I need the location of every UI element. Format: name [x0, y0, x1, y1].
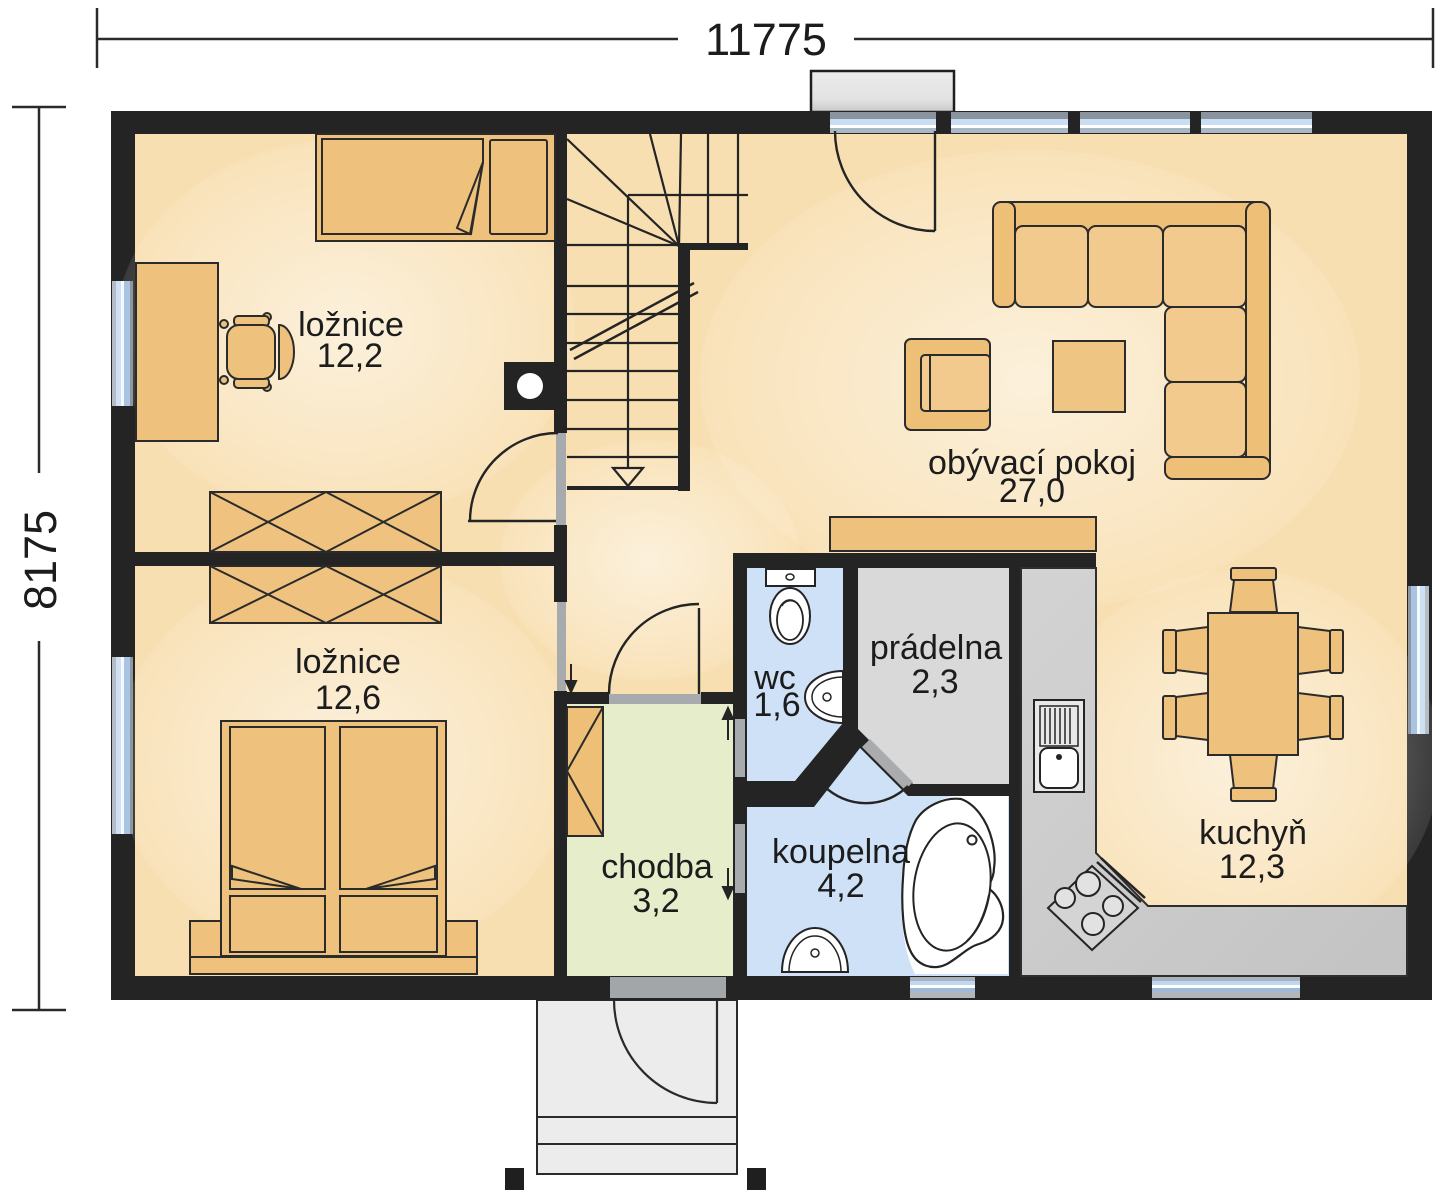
svg-text:ložnice: ložnice [295, 643, 401, 681]
svg-text:chodba: chodba [601, 848, 713, 886]
svg-text:4,2: 4,2 [817, 867, 864, 905]
svg-text:prádelna: prádelna [870, 629, 1002, 667]
svg-text:kuchyň: kuchyň [1199, 814, 1307, 852]
svg-text:12,2: 12,2 [317, 337, 383, 375]
svg-text:1,6: 1,6 [753, 686, 800, 724]
svg-text:2,3: 2,3 [911, 663, 958, 701]
svg-text:3,2: 3,2 [632, 882, 679, 920]
svg-text:27,0: 27,0 [999, 472, 1065, 510]
svg-text:8175: 8175 [15, 510, 66, 610]
svg-text:12,3: 12,3 [1219, 848, 1285, 886]
svg-text:12,6: 12,6 [315, 679, 381, 717]
svg-text:koupelna: koupelna [772, 833, 910, 871]
svg-text:11775: 11775 [705, 14, 827, 65]
